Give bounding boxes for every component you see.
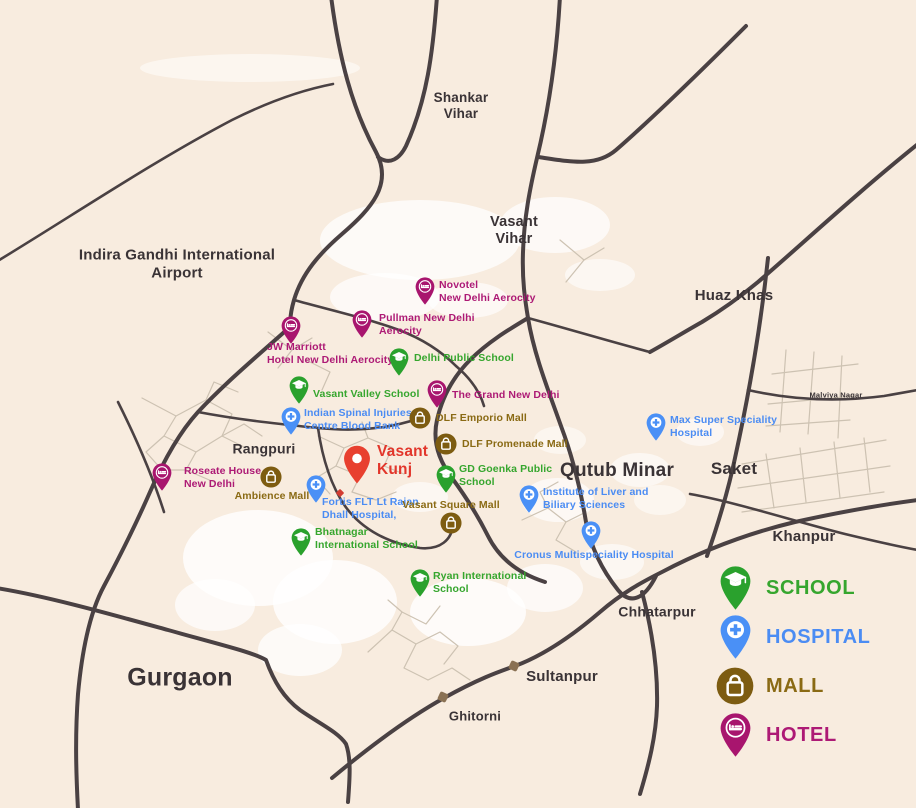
legend-label-hotel: HOTEL [766, 724, 837, 747]
legend-label-mall: MALL [766, 675, 824, 698]
area-label-indira-gandhi-international-airport: Indira Gandhi International Airport [79, 246, 275, 281]
legend-item-hospital: HOSPITAL [712, 615, 870, 659]
poi-label-bhatnagar: Bhatnagar International School [315, 526, 418, 552]
hospital-pin-icon [581, 521, 602, 550]
area-label-ghitorni: Ghitorni [449, 708, 501, 723]
hospital-pin-icon [519, 485, 540, 514]
open-area-patches [140, 54, 724, 676]
poi-label-cronus-multispeciality-hospital: Cronus Multispeciality Hospital [514, 549, 673, 562]
school-pin-icon [436, 465, 457, 494]
area-label-gurgaon: Gurgaon [127, 663, 233, 693]
legend-item-mall: MALL [712, 664, 870, 708]
hospital-pin-icon [281, 407, 302, 436]
hotel-pin-icon [352, 310, 373, 339]
highlight-pin-icon [343, 445, 372, 485]
school-pin-icon [712, 565, 758, 611]
hospital-pin-icon [646, 413, 667, 442]
legend-label-hospital: HOSPITAL [766, 626, 870, 649]
poi-label-institute-of-liver-and: Institute of Liver and Biliary Sciences [543, 486, 648, 512]
poi-label-dlf-promenade-mall: DLF Promenade Mall [462, 438, 568, 451]
area-label-rangpuri: Rangpuri [232, 441, 295, 458]
area-label-malviya-nagar: Malviya Nagar [809, 392, 862, 401]
area-label-qutub-minar: Qutub Minar [560, 460, 674, 482]
legend-item-school: SCHOOL [712, 566, 870, 610]
school-pin-icon [289, 376, 310, 405]
area-label-vasant-vihar: Vasant Vihar [490, 214, 538, 248]
area-label-khanpur: Khanpur [772, 528, 835, 546]
area-label-chhatarpur: Chhatarpur [618, 604, 695, 621]
area-label-huaz-khas: Huaz Khas [695, 287, 774, 305]
poi-label-jw-marriott: JW Marriott Hotel New Delhi Aerocity [267, 341, 393, 367]
school-pin-icon [410, 569, 431, 598]
poi-label-indian-spinal-injuries: Indian Spinal Injuries Centre Blood Bank [304, 407, 412, 433]
poi-label-vasant-square-mall: Vasant Square Mall [402, 499, 500, 512]
legend-item-hotel: HOTEL [712, 713, 870, 757]
mall-pin-icon [435, 433, 458, 456]
hotel-pin-icon [415, 277, 436, 306]
poi-label-dlf-emporio-mall: DLF Emporio Mall [436, 412, 527, 425]
school-pin-icon [291, 528, 312, 557]
hotel-pin-icon [152, 463, 173, 492]
mall-bag-icon [712, 666, 758, 706]
vasant-kunj-locality-map: SCHOOL HOSPITAL MALL HOTEL Shankar Vihar… [0, 0, 916, 808]
poi-label-ambience-mall: Ambience Mall [235, 490, 310, 503]
poi-label-ryan-international: Ryan International School [433, 570, 526, 596]
legend-label-school: SCHOOL [766, 577, 855, 600]
area-label-saket: Saket [711, 459, 757, 479]
poi-label-the-grand-new-delhi: The Grand New Delhi [452, 389, 560, 402]
hotel-pin-icon [712, 712, 758, 758]
poi-label-novotel: Novotel New Delhi Aerocity [439, 279, 536, 305]
hotel-pin-icon [427, 380, 448, 409]
poi-label-delhi-public-school: Delhi Public School [414, 352, 514, 365]
hospital-pin-icon [712, 614, 758, 660]
area-label-sultanpur: Sultanpur [526, 668, 598, 686]
poi-label-pullman-new-delhi: Pullman New Delhi Aerocity [379, 312, 475, 338]
school-pin-icon [389, 348, 410, 377]
mall-pin-icon [409, 407, 432, 430]
mall-pin-icon [440, 512, 463, 535]
map-legend: SCHOOL HOSPITAL MALL HOTEL [712, 566, 870, 762]
poi-label-max-super-speciality: Max Super Speciality Hospital [670, 414, 777, 440]
area-label-shankar-vihar: Shankar Vihar [434, 90, 489, 122]
poi-label-roseate-house: Roseate House New Delhi [184, 465, 261, 491]
poi-label-vasant: Vasant Kunj [377, 443, 428, 479]
poi-label-vasant-valley-school: Vasant Valley School [313, 388, 419, 401]
mall-pin-icon [260, 466, 283, 489]
